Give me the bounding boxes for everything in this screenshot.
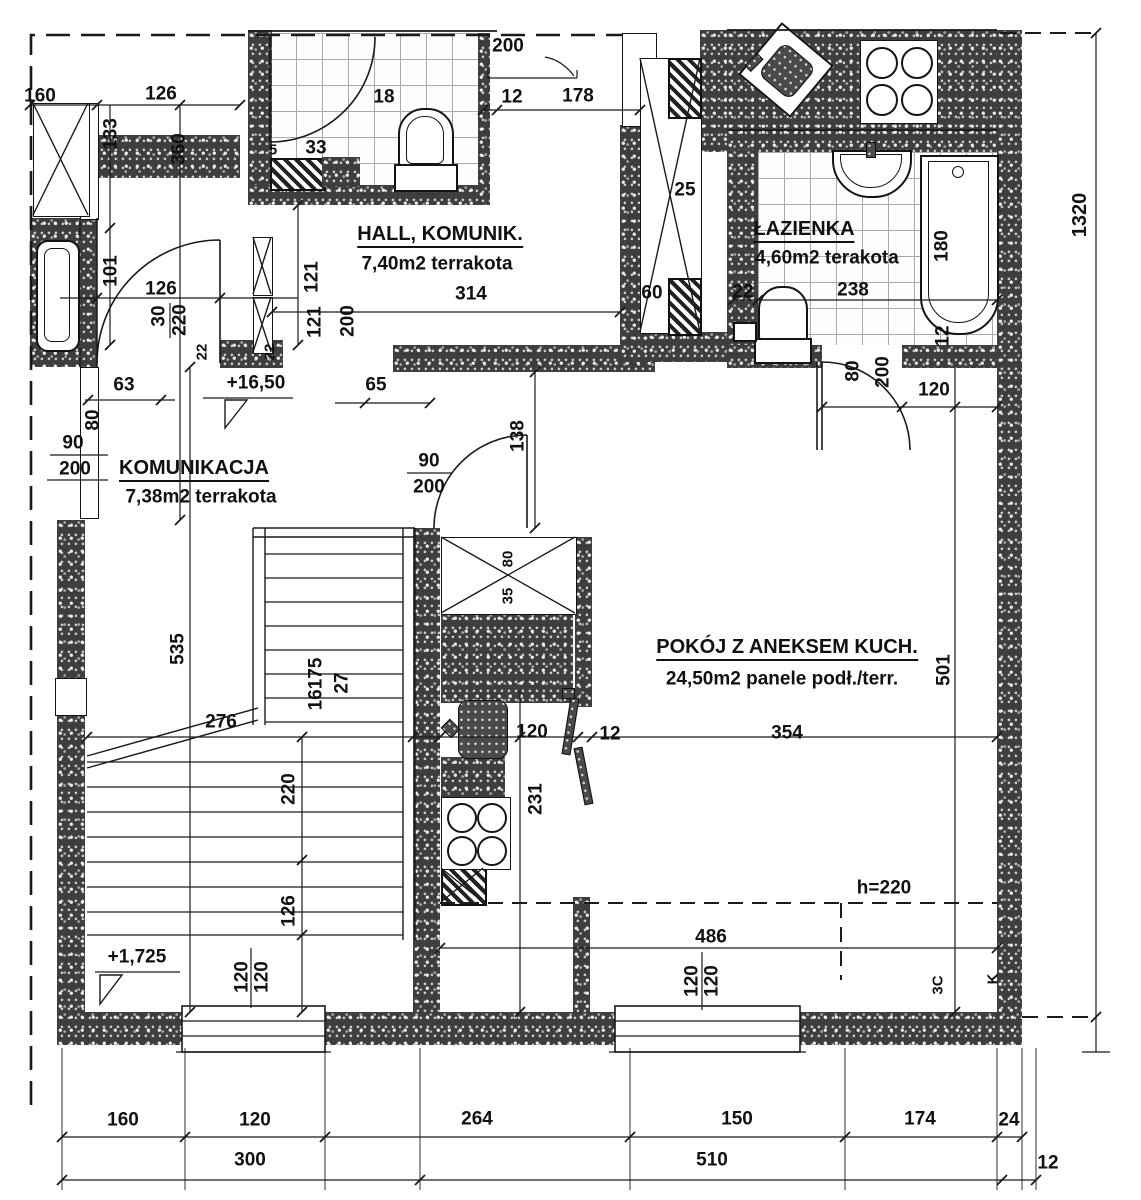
room-label-bathroom: ŁAZIENKA	[753, 219, 854, 243]
window-size: 120	[253, 961, 272, 993]
dim: 200	[874, 356, 893, 388]
dim: 200	[492, 37, 524, 56]
dim: 200	[339, 305, 358, 337]
dim: 276	[205, 713, 237, 732]
room-label-hall: HALL, KOMUNIK.	[357, 224, 523, 248]
chain-dim: 174	[904, 1110, 936, 1129]
dim: 33	[305, 139, 326, 158]
dim: 1320	[1070, 193, 1090, 238]
dim: 535	[169, 633, 188, 665]
window-size: 120	[683, 965, 702, 997]
dim: 126	[145, 280, 177, 299]
dim: 65	[365, 376, 386, 395]
room-area-hall: 7,40m2 terrakota	[361, 255, 512, 274]
dim: 12	[501, 88, 522, 107]
level-mark-lower: +1,725	[108, 948, 167, 967]
dim: 220	[171, 304, 190, 336]
stair-tread-note: 27	[333, 672, 352, 693]
dim: 138	[509, 420, 528, 452]
dim: 220	[280, 773, 299, 805]
dim: 238	[837, 281, 869, 300]
dim: 63	[113, 376, 134, 395]
outlet-mark-b: K	[986, 974, 1001, 985]
dim: 5	[269, 143, 277, 158]
chain-dim: 12	[1037, 1154, 1058, 1173]
room-area-corridor: 7,38m2 terrakota	[125, 488, 276, 507]
window-size: 120	[703, 965, 722, 997]
room-label-corridor: KOMUNIKACJA	[119, 458, 269, 482]
dim: 22	[195, 344, 210, 361]
chain-dim: 150	[721, 1110, 753, 1129]
dim: 133	[102, 118, 121, 150]
stair-steps-note: 16175	[307, 658, 326, 711]
dim: 35	[501, 588, 516, 605]
chain-dim: 24	[998, 1111, 1019, 1130]
dim: 80	[501, 551, 516, 568]
window-size: 120	[233, 961, 252, 993]
chain-dim: 120	[239, 1111, 271, 1130]
dim: 90	[62, 434, 83, 453]
dim: 120	[918, 381, 950, 400]
floor-plan: HALL, KOMUNIK. 7,40m2 terrakota ŁAZIENKA…	[0, 0, 1141, 1200]
chain-dim: 300	[234, 1151, 266, 1170]
dim: 354	[771, 724, 803, 743]
dim: 126	[280, 895, 299, 927]
ceiling-height-note: h=220	[857, 879, 911, 898]
room-area-bathroom: 4,60m2 terakota	[755, 249, 899, 268]
dim: 101	[102, 255, 121, 287]
chain-dim: 160	[107, 1111, 139, 1130]
dim: 200	[59, 460, 91, 479]
dim: 501	[935, 654, 954, 686]
level-mark-upper: +16,50	[227, 374, 286, 393]
dim: 200	[413, 478, 445, 497]
dim: 18	[373, 88, 394, 107]
dim: 231	[527, 783, 546, 815]
dim: 178	[562, 87, 594, 106]
plan-linework	[0, 0, 1141, 1200]
chain-dim: 264	[461, 1110, 493, 1129]
dim: 121	[306, 306, 325, 338]
dim: 25	[674, 181, 695, 200]
room-label-living: POKÓJ Z ANEKSEM KUCH.	[656, 637, 918, 661]
dim: 314	[455, 285, 487, 304]
dim: 180	[933, 230, 952, 262]
dim: 120	[516, 723, 548, 742]
outlet-mark-a: 3C	[931, 975, 946, 994]
dim: 30	[150, 305, 169, 326]
dim: 486	[695, 928, 727, 947]
dim: 12	[934, 325, 953, 346]
dim: 126	[145, 85, 177, 104]
dim: 160	[24, 87, 56, 106]
dim: 90	[418, 452, 439, 471]
dim: 360	[170, 133, 189, 165]
dim: 80	[844, 360, 863, 381]
dim: 22	[732, 283, 753, 302]
dim: 12	[599, 725, 620, 744]
dim: 121	[303, 261, 322, 293]
dim: 60	[641, 284, 662, 303]
dim: 22	[263, 344, 278, 361]
dim: 80	[84, 409, 103, 430]
room-area-living: 24,50m2 panele podł./terr.	[666, 670, 898, 689]
chain-dim: 510	[696, 1151, 728, 1170]
